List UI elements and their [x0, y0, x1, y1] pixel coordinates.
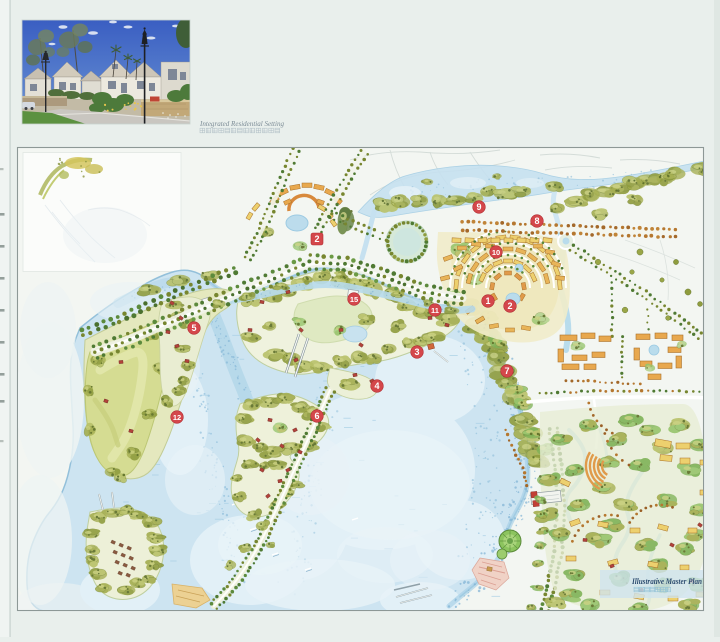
svg-text:7: 7 — [504, 366, 509, 376]
svg-text:9: 9 — [476, 202, 481, 212]
svg-text:2: 2 — [507, 301, 512, 311]
svg-text:2: 2 — [314, 234, 319, 244]
svg-text:Illustrative Master Plan: Illustrative Master Plan — [631, 577, 702, 586]
svg-text:15: 15 — [350, 295, 358, 304]
svg-text:10: 10 — [492, 248, 500, 257]
svg-text:11: 11 — [431, 306, 439, 315]
svg-text:12: 12 — [173, 413, 181, 422]
svg-text:5: 5 — [191, 323, 196, 333]
svg-text:8: 8 — [534, 216, 539, 226]
svg-text:1: 1 — [485, 296, 490, 306]
svg-text:4: 4 — [374, 381, 379, 391]
svg-text:Integrated Residential Setting: Integrated Residential Setting — [199, 121, 285, 128]
svg-text:6: 6 — [314, 411, 319, 421]
svg-text:3: 3 — [414, 347, 419, 357]
